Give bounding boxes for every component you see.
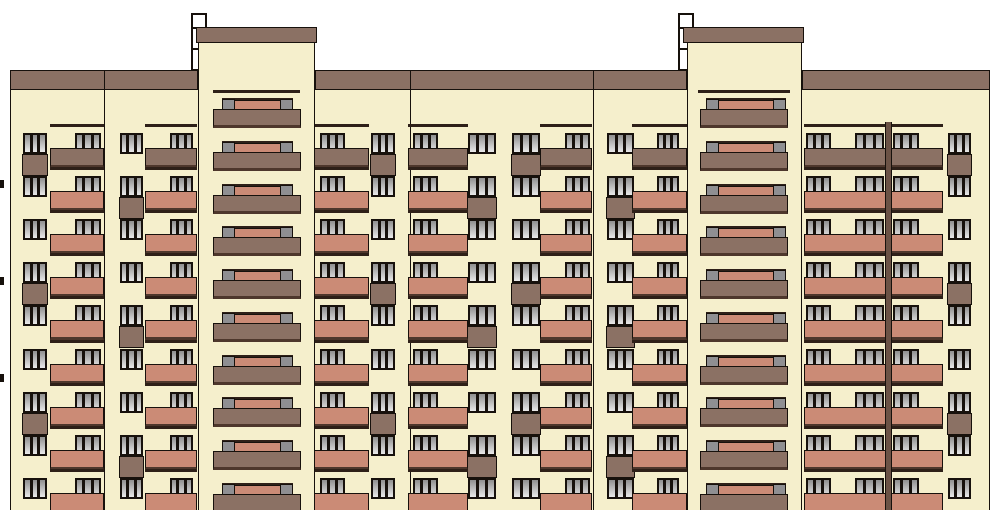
window-pane bbox=[373, 135, 378, 152]
window-pane bbox=[514, 480, 520, 497]
balcony-rail bbox=[408, 469, 468, 472]
balcony-front bbox=[540, 364, 592, 384]
window bbox=[512, 262, 540, 283]
balcony-front bbox=[408, 277, 468, 297]
loggia-front bbox=[700, 195, 788, 214]
balcony-front bbox=[50, 407, 104, 427]
balcony-front bbox=[632, 277, 687, 297]
balcony-front bbox=[632, 191, 687, 211]
window-pane bbox=[532, 437, 538, 454]
loggia-front bbox=[700, 366, 788, 385]
window-pane bbox=[957, 480, 961, 497]
window bbox=[120, 435, 143, 456]
window bbox=[607, 392, 634, 413]
window-pane bbox=[488, 437, 494, 454]
window bbox=[371, 305, 395, 326]
window-pane bbox=[470, 178, 476, 195]
window-pane bbox=[523, 307, 529, 324]
window bbox=[607, 305, 634, 326]
window-pane bbox=[479, 351, 485, 368]
window-pane bbox=[965, 221, 969, 238]
window-pane bbox=[470, 351, 476, 368]
window-pane bbox=[381, 178, 386, 195]
window-pane bbox=[609, 307, 615, 324]
window-pane bbox=[488, 221, 494, 238]
window-pane bbox=[950, 394, 954, 411]
balcony-front bbox=[313, 407, 369, 427]
window-pane bbox=[618, 307, 624, 324]
window-pane bbox=[129, 221, 133, 238]
window-pane bbox=[381, 264, 386, 281]
window-pane bbox=[129, 437, 133, 454]
loggia-front bbox=[213, 195, 301, 214]
window bbox=[468, 176, 496, 197]
balcony-front bbox=[313, 277, 369, 297]
spandrel-panel bbox=[370, 154, 396, 176]
window-pane bbox=[129, 480, 133, 497]
window-pane bbox=[957, 221, 961, 238]
balcony-front bbox=[313, 493, 369, 510]
balcony-front bbox=[408, 407, 468, 427]
balcony-rail bbox=[408, 253, 468, 256]
window-pane bbox=[388, 351, 393, 368]
balcony-front bbox=[50, 148, 104, 168]
window-pane bbox=[514, 135, 520, 152]
balcony-rail bbox=[408, 426, 468, 429]
balcony-rail bbox=[145, 296, 197, 299]
window-pane bbox=[965, 480, 969, 497]
window-pane bbox=[388, 394, 393, 411]
window bbox=[512, 478, 540, 499]
window-pane bbox=[470, 394, 476, 411]
balcony-front bbox=[890, 493, 943, 510]
balcony-front bbox=[145, 234, 197, 254]
balcony-front bbox=[540, 277, 592, 297]
window-pane bbox=[122, 351, 126, 368]
window-pane bbox=[137, 221, 141, 238]
balcony-front bbox=[408, 493, 468, 510]
window-pane bbox=[957, 394, 961, 411]
window bbox=[371, 392, 395, 413]
loggia-front bbox=[213, 109, 301, 128]
window bbox=[512, 219, 540, 240]
window-pane bbox=[609, 394, 615, 411]
window bbox=[23, 435, 47, 456]
balcony-rail bbox=[50, 383, 104, 386]
balcony-front bbox=[50, 450, 104, 470]
window bbox=[512, 349, 540, 370]
spandrel-panel bbox=[22, 413, 48, 435]
balcony-rail bbox=[804, 253, 886, 256]
window-pane bbox=[373, 394, 378, 411]
window-pane bbox=[950, 135, 954, 152]
spandrel-panel bbox=[370, 283, 396, 305]
window-pane bbox=[122, 178, 126, 195]
balcony-front bbox=[540, 234, 592, 254]
window-pane bbox=[122, 394, 126, 411]
window-pane bbox=[137, 480, 141, 497]
window-pane bbox=[488, 351, 494, 368]
balcony-rail bbox=[50, 340, 104, 343]
tower-cap bbox=[683, 27, 804, 43]
spandrel-panel bbox=[947, 154, 972, 176]
window-pane bbox=[470, 480, 476, 497]
balcony-rail bbox=[50, 469, 104, 472]
balcony-rail bbox=[313, 124, 369, 127]
balcony-rail bbox=[804, 426, 886, 429]
spandrel-panel bbox=[606, 197, 635, 219]
balcony-rail bbox=[890, 296, 943, 299]
loggia-front bbox=[700, 323, 788, 342]
balcony-rail bbox=[408, 383, 468, 386]
window-pane bbox=[137, 135, 141, 152]
window-pane bbox=[137, 437, 141, 454]
window-pane bbox=[950, 437, 954, 454]
balcony-front bbox=[540, 407, 592, 427]
balcony-rail bbox=[804, 469, 886, 472]
loggia-front bbox=[700, 451, 788, 470]
window-pane bbox=[514, 178, 520, 195]
window-pane bbox=[523, 221, 529, 238]
window-pane bbox=[950, 264, 954, 281]
window-pane bbox=[965, 351, 969, 368]
window bbox=[120, 349, 143, 370]
window-pane bbox=[122, 480, 126, 497]
balcony-rail bbox=[313, 253, 369, 256]
window bbox=[371, 133, 395, 154]
spandrel-panel bbox=[119, 197, 144, 219]
window-pane bbox=[122, 135, 126, 152]
balcony-rail bbox=[50, 253, 104, 256]
window-pane bbox=[25, 264, 30, 281]
balcony-rail bbox=[632, 340, 687, 343]
window bbox=[23, 133, 47, 154]
balcony-rail bbox=[145, 167, 197, 170]
window bbox=[468, 349, 496, 370]
window-pane bbox=[950, 351, 954, 368]
window-pane bbox=[957, 307, 961, 324]
window-pane bbox=[965, 394, 969, 411]
balcony-rail bbox=[890, 210, 943, 213]
window bbox=[468, 435, 496, 456]
balcony-rail bbox=[50, 210, 104, 213]
window-pane bbox=[488, 135, 494, 152]
balcony-front bbox=[804, 364, 886, 384]
balcony-rail bbox=[313, 296, 369, 299]
window-pane bbox=[488, 264, 494, 281]
balcony-rail bbox=[890, 253, 943, 256]
window-pane bbox=[137, 351, 141, 368]
window-pane bbox=[25, 351, 30, 368]
window-pane bbox=[532, 178, 538, 195]
window-pane bbox=[618, 135, 624, 152]
window-pane bbox=[488, 394, 494, 411]
window-pane bbox=[609, 221, 615, 238]
window-pane bbox=[470, 264, 476, 281]
balcony-rail bbox=[50, 167, 104, 170]
balcony-front bbox=[540, 191, 592, 211]
window-pane bbox=[618, 480, 624, 497]
window bbox=[23, 305, 47, 326]
window bbox=[120, 305, 143, 326]
window bbox=[371, 349, 395, 370]
window-pane bbox=[479, 264, 485, 281]
balcony-front bbox=[890, 234, 943, 254]
balcony-front bbox=[408, 234, 468, 254]
window bbox=[23, 219, 47, 240]
window-pane bbox=[25, 437, 30, 454]
window-pane bbox=[609, 264, 615, 281]
balcony-front bbox=[145, 407, 197, 427]
balcony-rail bbox=[632, 124, 687, 127]
window-pane bbox=[40, 394, 45, 411]
window-pane bbox=[388, 437, 393, 454]
window bbox=[512, 392, 540, 413]
window bbox=[468, 305, 496, 326]
balcony-front bbox=[408, 364, 468, 384]
loggia-front bbox=[213, 323, 301, 342]
window-pane bbox=[381, 480, 386, 497]
tower-cornice-line bbox=[698, 90, 790, 93]
balcony-front bbox=[145, 320, 197, 340]
window-pane bbox=[122, 307, 126, 324]
window-pane bbox=[479, 135, 485, 152]
window bbox=[948, 176, 971, 197]
spandrel-panel bbox=[606, 326, 635, 348]
window bbox=[23, 478, 47, 499]
balcony-front bbox=[408, 191, 468, 211]
balcony-front bbox=[890, 148, 943, 168]
window-pane bbox=[25, 178, 30, 195]
window-pane bbox=[25, 135, 30, 152]
window bbox=[468, 219, 496, 240]
balcony-front bbox=[632, 450, 687, 470]
window-pane bbox=[129, 394, 133, 411]
balcony-rail bbox=[313, 167, 369, 170]
window bbox=[607, 262, 634, 283]
balcony-rail bbox=[145, 210, 197, 213]
balcony-rail bbox=[540, 469, 592, 472]
window-pane bbox=[514, 264, 520, 281]
loggia-front bbox=[213, 494, 301, 510]
balcony-front bbox=[313, 364, 369, 384]
balcony-rail bbox=[408, 167, 468, 170]
window-pane bbox=[129, 351, 133, 368]
balcony-rail bbox=[890, 124, 943, 127]
balcony-rail bbox=[313, 210, 369, 213]
spandrel-panel bbox=[606, 456, 635, 478]
balcony-front bbox=[540, 320, 592, 340]
window bbox=[120, 219, 143, 240]
balcony-front bbox=[313, 234, 369, 254]
window bbox=[948, 219, 971, 240]
balcony-rail bbox=[313, 340, 369, 343]
window-pane bbox=[609, 135, 615, 152]
loggia-front bbox=[700, 280, 788, 299]
section-joint bbox=[593, 70, 594, 510]
window bbox=[23, 176, 47, 197]
balcony-front bbox=[804, 450, 886, 470]
balcony-front bbox=[50, 191, 104, 211]
window-pane bbox=[381, 394, 386, 411]
balcony-front bbox=[890, 407, 943, 427]
window-pane bbox=[129, 307, 133, 324]
window-pane bbox=[40, 437, 45, 454]
balcony-front bbox=[50, 234, 104, 254]
spandrel-panel bbox=[947, 413, 972, 435]
window-pane bbox=[381, 307, 386, 324]
window-pane bbox=[25, 307, 30, 324]
balcony-front bbox=[540, 450, 592, 470]
window-pane bbox=[618, 351, 624, 368]
balcony-rail bbox=[632, 167, 687, 170]
window-pane bbox=[137, 394, 141, 411]
section-joint bbox=[104, 70, 105, 510]
balcony-rail bbox=[408, 340, 468, 343]
window-pane bbox=[950, 307, 954, 324]
balcony-front bbox=[804, 191, 886, 211]
balcony-front bbox=[890, 320, 943, 340]
window-pane bbox=[137, 178, 141, 195]
spandrel-panel bbox=[467, 456, 497, 478]
balcony-front bbox=[804, 407, 886, 427]
window-pane bbox=[618, 178, 624, 195]
balcony-rail bbox=[804, 296, 886, 299]
window-pane bbox=[609, 178, 615, 195]
spandrel-panel bbox=[511, 283, 541, 305]
window bbox=[371, 219, 395, 240]
window-pane bbox=[532, 307, 538, 324]
window-pane bbox=[532, 264, 538, 281]
window-pane bbox=[618, 264, 624, 281]
balcony-front bbox=[632, 320, 687, 340]
window-pane bbox=[609, 480, 615, 497]
window bbox=[23, 262, 47, 283]
balcony-rail bbox=[408, 210, 468, 213]
balcony-rail bbox=[632, 253, 687, 256]
balcony-rail bbox=[408, 124, 468, 127]
spandrel-panel bbox=[22, 154, 48, 176]
window-pane bbox=[373, 307, 378, 324]
window-pane bbox=[957, 437, 961, 454]
balcony-front bbox=[804, 493, 886, 510]
spandrel-panel bbox=[467, 326, 497, 348]
balcony-front bbox=[632, 407, 687, 427]
window-pane bbox=[40, 264, 45, 281]
window-pane bbox=[33, 437, 38, 454]
window bbox=[512, 133, 540, 154]
balcony-rail bbox=[540, 124, 592, 127]
balcony-front bbox=[804, 277, 886, 297]
balcony-front bbox=[890, 277, 943, 297]
window-pane bbox=[470, 135, 476, 152]
level-mark bbox=[0, 374, 4, 382]
balcony-rail bbox=[632, 296, 687, 299]
window bbox=[948, 305, 971, 326]
balcony-rail bbox=[540, 296, 592, 299]
balcony-rail bbox=[540, 426, 592, 429]
window bbox=[120, 478, 143, 499]
balcony-rail bbox=[145, 383, 197, 386]
window-pane bbox=[40, 221, 45, 238]
window bbox=[23, 392, 47, 413]
balcony-rail bbox=[540, 383, 592, 386]
window bbox=[120, 262, 143, 283]
window-pane bbox=[33, 307, 38, 324]
window-pane bbox=[965, 135, 969, 152]
window bbox=[607, 478, 634, 499]
balcony-front bbox=[632, 148, 687, 168]
window bbox=[120, 133, 143, 154]
balcony-rail bbox=[145, 469, 197, 472]
loggia-front bbox=[213, 152, 301, 171]
window bbox=[607, 349, 634, 370]
balcony-rail bbox=[145, 124, 197, 127]
loggia-front bbox=[700, 494, 788, 510]
window-pane bbox=[388, 480, 393, 497]
balcony-front bbox=[540, 493, 592, 510]
balcony-front bbox=[632, 364, 687, 384]
window-pane bbox=[523, 178, 529, 195]
window-pane bbox=[33, 221, 38, 238]
window-pane bbox=[381, 135, 386, 152]
balcony-rail bbox=[632, 383, 687, 386]
building-elevation bbox=[0, 0, 994, 510]
balcony-front bbox=[50, 277, 104, 297]
window-pane bbox=[381, 221, 386, 238]
level-mark bbox=[0, 277, 4, 285]
window-pane bbox=[381, 351, 386, 368]
balcony-front bbox=[540, 148, 592, 168]
loggia-front bbox=[700, 109, 788, 128]
balcony-front bbox=[890, 364, 943, 384]
window-pane bbox=[129, 178, 133, 195]
window-pane bbox=[470, 437, 476, 454]
balcony-front bbox=[145, 493, 197, 510]
window-pane bbox=[33, 351, 38, 368]
window-pane bbox=[40, 135, 45, 152]
window-pane bbox=[33, 135, 38, 152]
window-pane bbox=[129, 135, 133, 152]
balcony-rail bbox=[145, 253, 197, 256]
window-pane bbox=[957, 178, 961, 195]
window bbox=[607, 435, 634, 456]
balcony-rail bbox=[540, 340, 592, 343]
window-pane bbox=[532, 135, 538, 152]
window-pane bbox=[618, 221, 624, 238]
window-pane bbox=[523, 351, 529, 368]
window-pane bbox=[25, 394, 30, 411]
window bbox=[607, 133, 634, 154]
balcony-rail bbox=[540, 210, 592, 213]
spandrel-panel bbox=[511, 154, 541, 176]
balcony-front bbox=[145, 148, 197, 168]
roof-band bbox=[315, 70, 687, 90]
window bbox=[512, 176, 540, 197]
window-pane bbox=[950, 178, 954, 195]
window-pane bbox=[523, 394, 529, 411]
window-pane bbox=[479, 480, 485, 497]
window bbox=[512, 435, 540, 456]
window-pane bbox=[122, 221, 126, 238]
window bbox=[371, 262, 395, 283]
wall-strip bbox=[885, 122, 892, 510]
window-pane bbox=[618, 394, 624, 411]
window bbox=[512, 305, 540, 326]
window bbox=[948, 478, 971, 499]
window-pane bbox=[965, 437, 969, 454]
window-pane bbox=[514, 221, 520, 238]
